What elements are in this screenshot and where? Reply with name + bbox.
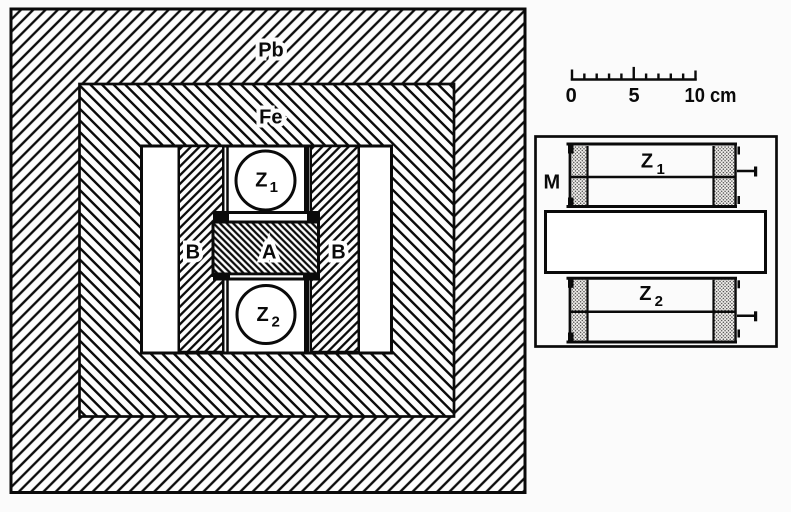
svg-text:Z: Z — [255, 170, 267, 192]
svg-text:Pb: Pb — [258, 39, 284, 61]
svg-text:B: B — [331, 242, 345, 264]
svg-text:2: 2 — [272, 313, 280, 330]
svg-text:M: M — [543, 172, 560, 194]
svg-text:0: 0 — [566, 85, 577, 107]
svg-text:Z: Z — [639, 283, 651, 305]
svg-text:1: 1 — [270, 179, 278, 196]
svg-text:1: 1 — [657, 161, 665, 178]
svg-text:Z: Z — [257, 304, 269, 326]
svg-text:5: 5 — [628, 85, 639, 107]
svg-text:2: 2 — [655, 293, 663, 310]
svg-text:Fe: Fe — [259, 107, 282, 129]
svg-text:B: B — [186, 242, 200, 264]
svg-text:Z: Z — [641, 151, 653, 173]
svg-text:10 cm: 10 cm — [685, 85, 737, 107]
svg-text:A: A — [262, 241, 276, 263]
